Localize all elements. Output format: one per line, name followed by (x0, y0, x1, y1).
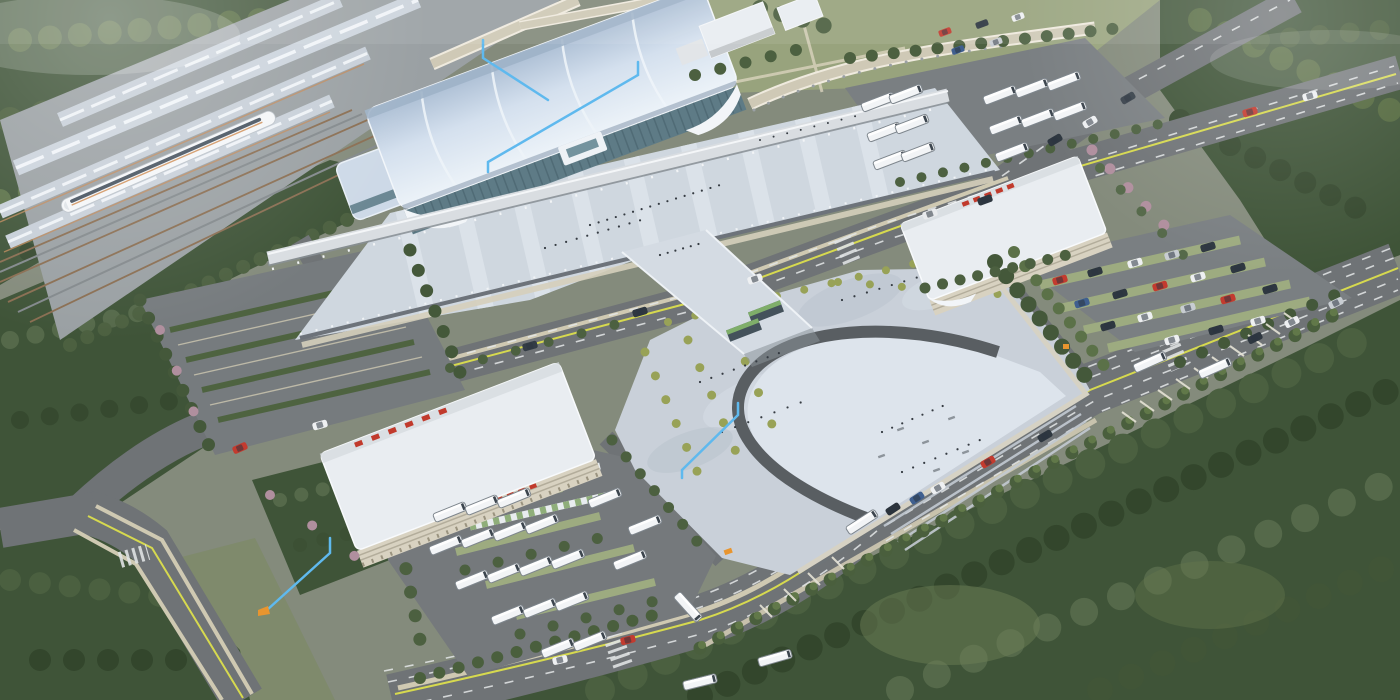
rendering-viewport (0, 0, 1400, 700)
aerial-rendering (0, 0, 1400, 700)
road-west-horizontal (0, 512, 95, 528)
marker-icon (1063, 344, 1069, 349)
